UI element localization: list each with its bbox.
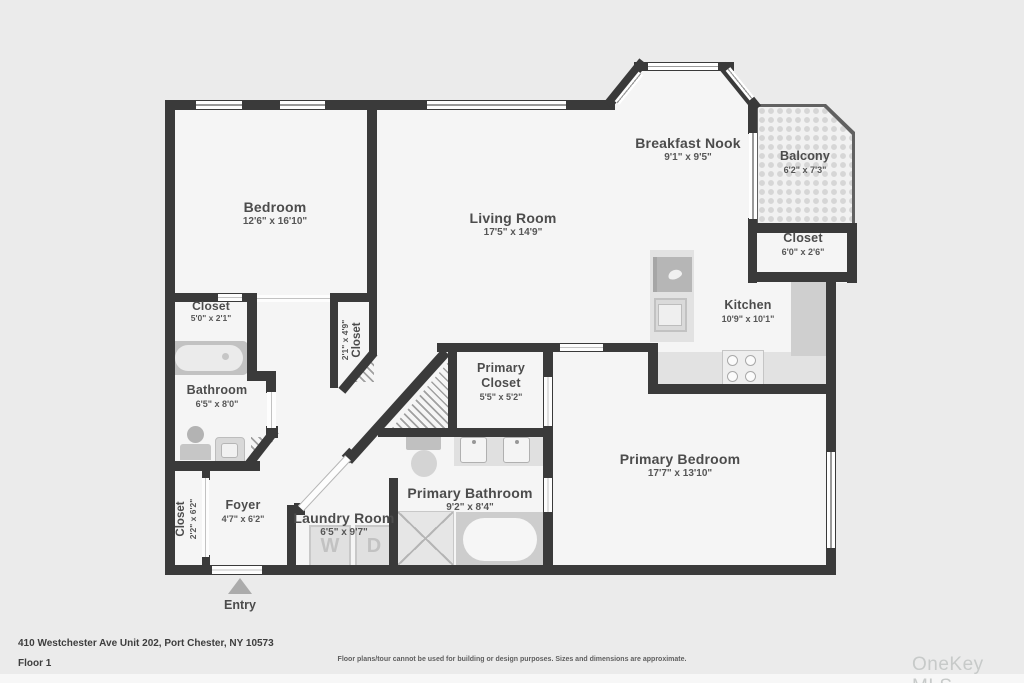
room-label-hall-closet: 2'1" x 4'9"Closet [340, 320, 364, 360]
bathtub-drain [222, 353, 229, 360]
door-opening [257, 295, 330, 302]
toilet-icon [406, 435, 441, 450]
wall [266, 371, 276, 393]
wall [369, 293, 377, 355]
room-label-bedroom: Bedroom12'6" x 16'10" [243, 199, 307, 228]
door-opening [560, 344, 603, 351]
onekey-mls-watermark: OneKey MLS [912, 654, 1024, 683]
disclaimer-text: Floor plans/tour cannot be used for buil… [338, 656, 687, 663]
kitchen-counter-right [791, 272, 828, 356]
door-opening [267, 392, 276, 428]
wall [448, 352, 457, 437]
stove-burner [745, 371, 756, 382]
room-label-bathroom: Bathroom6'5" x 8'0" [187, 383, 248, 410]
oven-door [658, 304, 682, 326]
wall [367, 105, 377, 295]
window [427, 101, 566, 109]
floor-text: Floor 1 [18, 658, 51, 669]
pedestal-sink-base [180, 444, 211, 460]
room-label-foyer: Foyer4'7" x 6'2" [222, 498, 265, 525]
window [196, 101, 242, 109]
bathtub-basin [463, 518, 537, 561]
wall [748, 272, 857, 282]
wall [165, 461, 260, 471]
wall [648, 384, 836, 394]
sink-icon [460, 437, 487, 463]
room-label-primary-bedroom: Primary Bedroom17'7" x 13'10" [620, 451, 740, 480]
pedestal-sink-icon [187, 426, 204, 443]
room-label-primary-bathroom: Primary Bathroom9'2" x 8'4" [407, 485, 532, 514]
wall [247, 293, 257, 379]
window [648, 63, 718, 70]
toilet-seat [221, 443, 238, 458]
room-label-primary-closet: Primary Closet5'5" x 5'2" [462, 361, 540, 403]
room-label-kitchen: Kitchen10'9" x 10'1" [722, 298, 775, 325]
room-label-laundry-room: Laundry Room6'5" x 9'7" [293, 510, 394, 539]
wall [165, 565, 836, 575]
wall [330, 293, 338, 388]
balcony-door [749, 133, 757, 219]
door-opening [544, 377, 552, 426]
room-label-living-room: Living Room17'5" x 14'9" [470, 210, 557, 239]
bathtub-basin [175, 345, 243, 371]
sink-icon [503, 437, 530, 463]
room-label-breakfast-nook: Breakfast Nook9'1" x 9'5" [635, 135, 741, 164]
door-opening [544, 478, 552, 512]
window [827, 452, 835, 548]
stove-burner [727, 355, 738, 366]
room-label-balcony-closet: Closet6'0" x 2'6" [782, 231, 825, 258]
wall [165, 100, 175, 575]
entry-door-opening [212, 566, 262, 574]
room-label-entry-closet: Closet2'2" x 6'2" [175, 499, 199, 539]
address-text: 410 Westchester Ave Unit 202, Port Chest… [18, 638, 274, 649]
sliding-closet-door [202, 478, 209, 557]
wall [748, 100, 757, 134]
stove-burner [745, 355, 756, 366]
shower-icon [397, 511, 454, 566]
stove-burner [727, 371, 738, 382]
entry-label: Entry [224, 598, 256, 612]
window [280, 101, 325, 109]
wall [378, 428, 553, 437]
entry-arrow-icon [228, 578, 252, 594]
room-label-bedroom-closet: Closet5'0" x 2'1" [191, 299, 231, 324]
toilet-bowl [411, 450, 437, 477]
floor-plan-page: W D [0, 0, 1024, 683]
footer-bar [0, 674, 1024, 683]
room-label-balcony: Balcony6'2" x 7'3" [780, 149, 830, 176]
